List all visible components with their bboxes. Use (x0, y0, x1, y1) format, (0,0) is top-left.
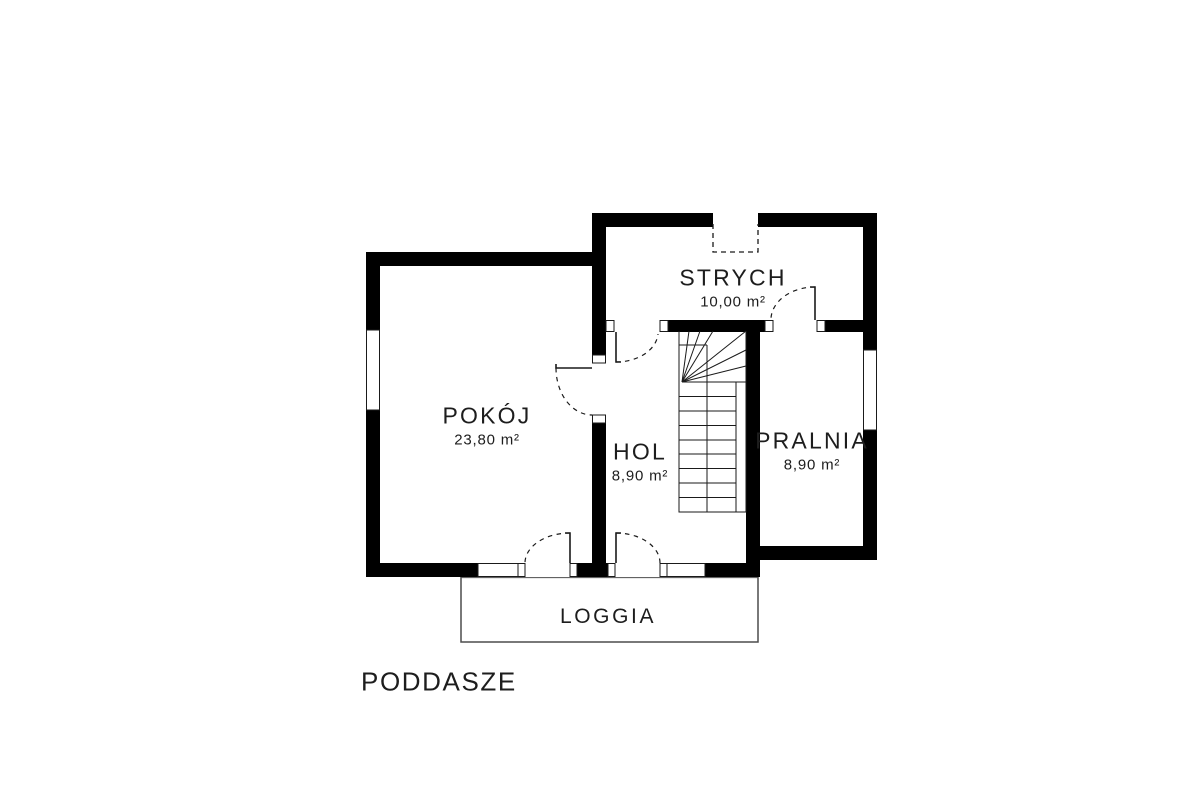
jamb (593, 355, 606, 363)
room-area-pokoj: 23,80 m² (443, 432, 532, 449)
opening-pralnia-door (773, 320, 817, 332)
floor-title: PODDASZE (361, 667, 517, 698)
door-strych-hol (616, 332, 658, 362)
room-name-strych: STRYCH (679, 265, 786, 291)
room-name-loggia: LOGGIA (560, 605, 656, 629)
walls (366, 213, 877, 577)
stair-winder-fan (682, 331, 746, 382)
jamb (606, 321, 614, 332)
jamb (608, 564, 615, 577)
jamb (593, 415, 606, 423)
room-label-strych: STRYCH 10,00 m² (679, 265, 786, 312)
room-label-pokoj: POKÓJ 23,80 m² (443, 403, 532, 450)
room-area-hol: 8,90 m² (612, 468, 668, 485)
room-area-strych: 10,00 m² (679, 294, 786, 311)
room-area-pralnia: 8,90 m² (755, 457, 869, 474)
wall-pokoj-top (366, 252, 606, 266)
jamb (570, 564, 577, 577)
opening-loggia-door-pokoj (525, 563, 570, 577)
jamb (660, 321, 668, 332)
jamb (765, 321, 773, 332)
jamb (518, 564, 525, 577)
window-hol-bottom (667, 564, 705, 577)
jamb (660, 564, 667, 577)
room-name-pokoj: POKÓJ (443, 403, 532, 429)
opening-pokoj-door (592, 363, 606, 415)
window-pokoj-bottom (478, 564, 518, 577)
wall-pralnia-bottom (746, 546, 877, 560)
floor-plan-drawing (0, 0, 1200, 800)
floor-plan-page: POKÓJ 23,80 m² HOL 8,90 m² STRYCH 10,00 … (0, 0, 1200, 800)
door-hol-loggia (616, 533, 660, 563)
jamb (817, 321, 825, 332)
opening-strych-door (614, 320, 660, 332)
opening-skylight (713, 212, 758, 228)
window-pralnia-right (864, 350, 877, 430)
room-label-hol: HOL 8,90 m² (612, 439, 668, 486)
wall-outer-left (366, 252, 380, 577)
door-pokoj-loggia (525, 533, 570, 563)
room-name-hol: HOL (612, 439, 668, 465)
room-label-loggia: LOGGIA (560, 605, 656, 629)
door-pokoj (556, 364, 592, 415)
staircase (679, 331, 746, 512)
window-pokoj-left (367, 330, 380, 410)
room-label-pralnia: PRALNIA 8,90 m² (755, 428, 869, 475)
skylight-dashed-box (713, 224, 758, 252)
opening-loggia-door-hol (615, 563, 660, 577)
room-name-pralnia: PRALNIA (755, 428, 869, 454)
